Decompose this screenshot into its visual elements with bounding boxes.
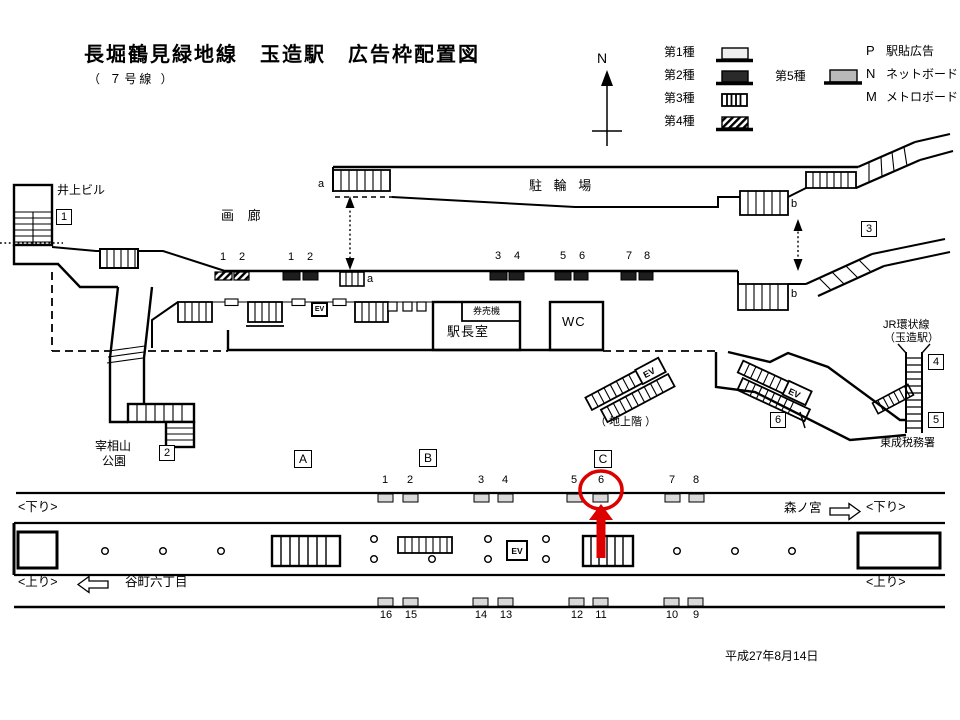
north-label: N xyxy=(597,50,607,66)
platform-slot-number: 5 xyxy=(566,474,582,486)
type2-slot-number: 1 xyxy=(284,251,298,263)
type2-slot-number: 6 xyxy=(575,250,589,262)
gallery-label: 画 廊 xyxy=(221,209,266,224)
platform-slot-number: 4 xyxy=(497,474,513,486)
location-box-5: 5 xyxy=(928,412,944,428)
page-title: 長堀鶴見緑地線 玉造駅 広告枠配置図 xyxy=(84,44,480,67)
jr-line-label-2: （玉造駅） xyxy=(884,332,939,345)
ticket-machines-label: 券売機 xyxy=(473,306,500,316)
location-box-2: 2 xyxy=(159,445,175,461)
type4-slot-number: 1 xyxy=(216,251,230,263)
highlight-arrow-icon xyxy=(589,504,613,558)
type4-slot-number: 2 xyxy=(235,251,249,263)
type2-slot-number: 5 xyxy=(556,250,570,262)
west-passage xyxy=(14,245,225,447)
type2-slot-number: 3 xyxy=(491,250,505,262)
type2-slot-number: 4 xyxy=(510,250,524,262)
stair-a-label-lower: a xyxy=(367,273,373,286)
legend-label-n: ネットボード xyxy=(886,68,958,82)
ev-concourse: EV xyxy=(311,302,328,317)
north-arrow-icon xyxy=(592,70,622,146)
platform-slot-number: 10 xyxy=(664,609,680,621)
platform-slot-number: 8 xyxy=(688,474,704,486)
tanimachi-arrow-icon xyxy=(78,577,108,593)
legend-type3-label: 第3種 xyxy=(664,92,695,106)
platform-slot-number: 15 xyxy=(403,609,419,621)
legend-type1-label: 第1種 xyxy=(664,46,695,60)
stair-b-label-lower: b xyxy=(791,288,797,301)
station-office-label: 駅長室 xyxy=(447,325,489,340)
park-label-1: 宰相山 xyxy=(95,440,131,454)
type2-slot-number: 8 xyxy=(640,250,654,262)
morinomiya-label: 森ノ宮 xyxy=(784,501,822,515)
link-arrow-b xyxy=(794,219,803,271)
section-box-c: C xyxy=(594,450,612,468)
platform-lower-ad-slots xyxy=(378,598,703,606)
legend-label-p: 駅貼広告 xyxy=(886,45,934,59)
section-box-b: B xyxy=(419,449,437,467)
legend-swatches xyxy=(716,48,862,130)
east-passage: EV xyxy=(716,352,913,440)
stair-a-label-upper: a xyxy=(318,178,324,191)
location-box-1: 1 xyxy=(56,209,72,225)
up-direction-left: <上り> xyxy=(18,575,58,589)
platform-slot-number: 11 xyxy=(593,609,609,621)
legend-code-n: N xyxy=(866,67,875,82)
stair-b-label-upper: b xyxy=(791,198,797,211)
platform-slot-number: 7 xyxy=(664,474,680,486)
platform-slot-number: 13 xyxy=(498,609,514,621)
location-box-6: 6 xyxy=(770,412,786,428)
park-label-2: 公園 xyxy=(102,455,126,469)
down-direction-right: <下り> xyxy=(866,500,906,514)
inoue-building-outline xyxy=(0,185,63,245)
ev-platform: EV xyxy=(506,540,528,561)
bicycle-parking-corridor xyxy=(333,134,953,215)
concourse-ad-slots xyxy=(215,272,653,280)
legend-type4-label: 第4種 xyxy=(664,115,695,129)
ground-floor-label: （ 地上階 ） xyxy=(595,416,656,429)
platform-structures xyxy=(18,532,940,568)
wc-label: WC xyxy=(562,315,586,330)
legend-type2-label: 第2種 xyxy=(664,69,695,83)
location-box-4: 4 xyxy=(928,354,944,370)
up-direction-right: <上り> xyxy=(866,575,906,589)
station-ad-layout-diagram: EV EV xyxy=(0,0,960,720)
type2-slot-number: 7 xyxy=(622,250,636,262)
tanimachi-label: 谷町六丁目 xyxy=(125,575,188,589)
platform-slot-number: 14 xyxy=(473,609,489,621)
page-subtitle: （ ７号線 ） xyxy=(88,73,176,87)
legend-code-p: P xyxy=(866,44,875,59)
platform-slot-number: 9 xyxy=(688,609,704,621)
platform-slot-number: 1 xyxy=(377,474,393,486)
link-arrow-a xyxy=(346,196,355,270)
platform-upper-ad-slots xyxy=(378,494,704,502)
platform-slot-number: 12 xyxy=(569,609,585,621)
inoue-building-label: 井上ビル xyxy=(57,184,105,198)
tax-office-label: 東成税務署 xyxy=(880,437,935,450)
platform-slot-number: 3 xyxy=(473,474,489,486)
revision-date: 平成27年8月14日 xyxy=(725,650,818,664)
jr-line-label-1: JR環状線 xyxy=(883,319,929,332)
platform-slot-number: 16 xyxy=(378,609,394,621)
legend-type5-label: 第5種 xyxy=(775,70,806,84)
down-direction-left: <下り> xyxy=(18,500,58,514)
platform-slot-number: 2 xyxy=(402,474,418,486)
morinomiya-arrow-icon xyxy=(830,504,860,520)
platform-slot-number-highlighted: 6 xyxy=(593,474,609,486)
legend-label-m: メトロボード xyxy=(886,91,958,105)
location-box-3: 3 xyxy=(861,221,877,237)
bicycle-parking-label: 駐 輪 場 xyxy=(529,179,595,194)
legend-code-m: M xyxy=(866,90,877,105)
type2-slot-number: 2 xyxy=(303,251,317,263)
section-box-a: A xyxy=(294,450,312,468)
